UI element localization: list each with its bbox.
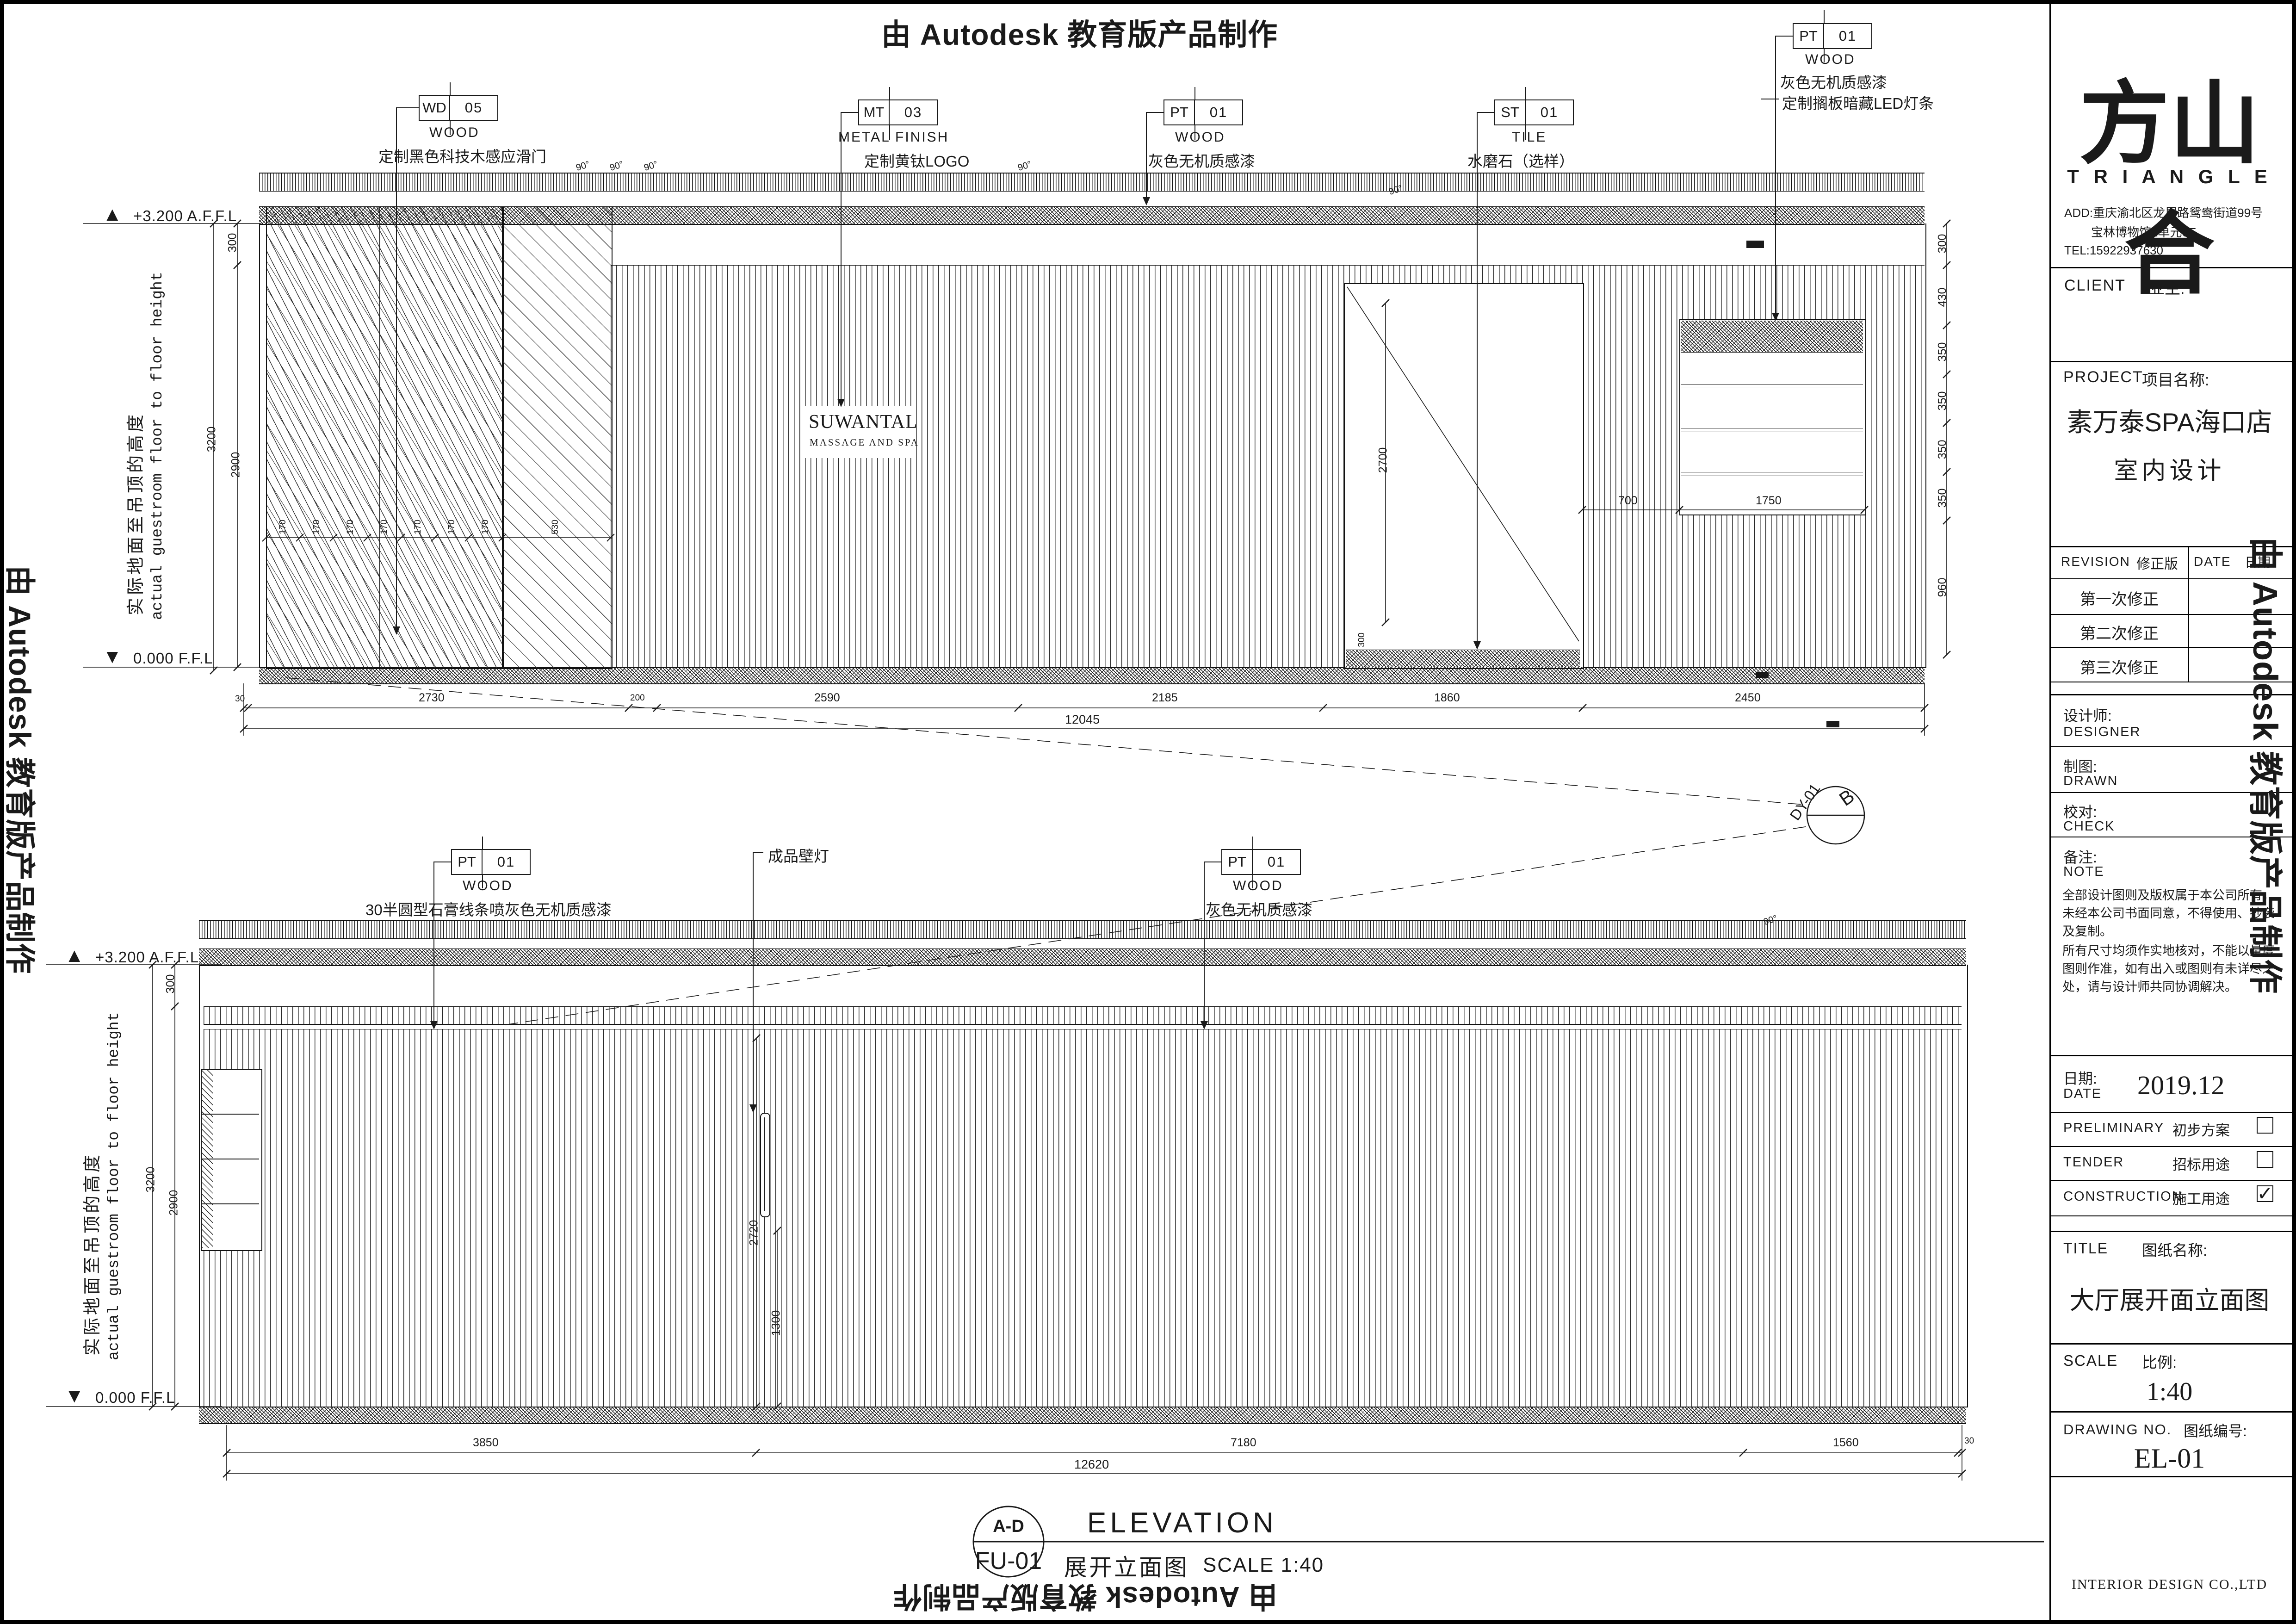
dim: 350 bbox=[1936, 342, 1949, 362]
callout-code: PT bbox=[1222, 850, 1253, 874]
callout-pt01-crown-desc: 30半圆型石膏线条喷灰色无机质感漆 bbox=[365, 898, 612, 920]
dim: 3200 bbox=[144, 1167, 157, 1193]
callout-code: MT bbox=[859, 100, 890, 124]
view-marker-top: A-D bbox=[973, 1517, 1044, 1537]
dim: 2900 bbox=[229, 452, 242, 478]
callout-pt01-crown: PT 01 bbox=[451, 849, 531, 875]
callout-pt01-top-material: WOOD bbox=[1175, 130, 1225, 145]
level-marker-icon: ▼ bbox=[103, 647, 122, 666]
dim: 3200 bbox=[205, 427, 218, 452]
dim: 2730 bbox=[419, 691, 445, 705]
dim: 300 bbox=[164, 974, 177, 994]
callout-pt01-wall-material: WOOD bbox=[1233, 878, 1283, 894]
callout-led-desc: 定制搁板暗藏LED灯条 bbox=[1782, 91, 1934, 113]
side-note-en-2: actual guestroom floor to floor height bbox=[105, 1012, 123, 1360]
dim: 430 bbox=[1936, 288, 1949, 307]
dim: 170 bbox=[278, 520, 288, 534]
level-marker-icon: ▼ bbox=[65, 1386, 84, 1406]
dim: 2185 bbox=[1152, 691, 1178, 705]
callout-code: WD bbox=[420, 96, 450, 120]
callout-pt01-shelf-material: WOOD bbox=[1805, 52, 1856, 68]
linework-overlay bbox=[0, 0, 2296, 1624]
callout-number: 05 bbox=[450, 96, 497, 120]
callout-code: PT bbox=[1794, 24, 1824, 48]
callout-pt01-wall: PT 01 bbox=[1221, 849, 1301, 875]
dim: 700 bbox=[1618, 494, 1638, 508]
dim: 300 bbox=[226, 233, 239, 253]
side-note-cn-2: 实际地面至吊顶的高度 bbox=[78, 1152, 103, 1356]
callout-number: 01 bbox=[1253, 850, 1300, 874]
callout-mt03-desc: 定制黄钛LOGO bbox=[864, 149, 969, 171]
dim: 170 bbox=[447, 520, 457, 534]
dim: 1860 bbox=[1434, 691, 1460, 705]
callout-pt01-crown-material: WOOD bbox=[463, 878, 513, 894]
dim: 1560 bbox=[1833, 1436, 1859, 1450]
dim: 170 bbox=[481, 520, 491, 534]
dim: 2450 bbox=[1735, 691, 1761, 705]
callout-pt01-top-desc: 灰色无机质感漆 bbox=[1148, 149, 1255, 171]
callout-st01-desc: 水磨石（选样） bbox=[1467, 149, 1574, 171]
dim: 350 bbox=[1936, 489, 1949, 508]
dim: 170 bbox=[312, 520, 322, 534]
view-title-en: ELEVATION bbox=[1087, 1506, 1277, 1539]
dim: 300 bbox=[1936, 234, 1949, 254]
dim: 170 bbox=[346, 520, 356, 534]
dim: 2590 bbox=[814, 691, 840, 705]
callout-wd05: WD 05 bbox=[419, 95, 498, 121]
level-bottom-label-2: 0.000 F.F.L bbox=[95, 1389, 175, 1407]
callout-wd05-desc: 定制黑色科技木感应滑门 bbox=[378, 144, 546, 167]
side-note-cn: 实际地面至吊顶的高度 bbox=[121, 412, 147, 615]
callout-pt01-shelf: PT 01 bbox=[1793, 23, 1872, 49]
dim: 200 bbox=[630, 693, 645, 703]
dim: 170 bbox=[413, 520, 423, 534]
view-scale: SCALE 1:40 bbox=[1203, 1554, 1324, 1577]
dim: 2700 bbox=[1376, 447, 1390, 473]
dim: 2720 bbox=[747, 1220, 761, 1246]
level-marker-icon: ▲ bbox=[103, 205, 122, 224]
level-bottom-label: 0.000 F.F.L bbox=[133, 650, 213, 667]
dim-total: 12045 bbox=[1065, 713, 1100, 727]
level-top-label-2: +3.200 A.F.F.L bbox=[95, 948, 199, 966]
dim: 350 bbox=[1936, 440, 1949, 459]
callout-mt03: MT 03 bbox=[858, 99, 938, 125]
callout-mt03-material: METAL FINISH bbox=[838, 130, 949, 145]
dim: 30 bbox=[235, 694, 245, 704]
drawing-sheet: 由 Autodesk 教育版产品制作 由 Autodesk 教育版产品制作 由 … bbox=[0, 0, 2296, 1624]
callout-number: 01 bbox=[483, 850, 530, 874]
view-title-cn: 展开立面图 bbox=[1064, 1549, 1189, 1582]
dim: 170 bbox=[379, 520, 390, 534]
callout-code: PT bbox=[452, 850, 483, 874]
level-top-label: +3.200 A.F.F.L bbox=[133, 207, 237, 225]
callout-code: PT bbox=[1164, 100, 1195, 124]
callout-number: 01 bbox=[1824, 24, 1871, 48]
dim: 3850 bbox=[473, 1436, 499, 1450]
dim: 350 bbox=[1936, 391, 1949, 411]
level-marker-icon: ▲ bbox=[65, 946, 84, 965]
dim: 7180 bbox=[1231, 1436, 1256, 1450]
side-note-en: actual guestroom floor to floor height bbox=[149, 272, 166, 620]
autodesk-banner-right: 由 Autodesk 教育版产品制作 bbox=[2243, 537, 2293, 994]
callout-pt01-shelf-desc: 灰色无机质感漆 bbox=[1780, 70, 1887, 93]
dim: 1750 bbox=[1756, 494, 1782, 508]
callout-number: 01 bbox=[1526, 100, 1573, 124]
wall-lamp-label: 成品壁灯 bbox=[768, 844, 829, 866]
callout-st01: ST 01 bbox=[1494, 99, 1574, 125]
dim: 300 bbox=[1357, 632, 1367, 647]
callout-code: ST bbox=[1495, 100, 1526, 124]
callout-pt01-wall-desc: 灰色无机质感漆 bbox=[1206, 898, 1312, 920]
dim: 30 bbox=[1964, 1436, 1974, 1446]
dim: 960 bbox=[1936, 578, 1949, 597]
dim: 1300 bbox=[769, 1310, 783, 1336]
callout-pt01-top: PT 01 bbox=[1163, 99, 1243, 125]
callout-number: 01 bbox=[1195, 100, 1242, 124]
dim: 2900 bbox=[167, 1190, 180, 1216]
callout-number: 03 bbox=[890, 100, 937, 124]
callout-wd05-material: WOOD bbox=[429, 125, 480, 141]
callout-st01-material: TILE bbox=[1512, 130, 1547, 145]
dim-total: 12620 bbox=[1074, 1457, 1109, 1472]
dim: 530 bbox=[551, 520, 561, 534]
view-marker-code: FU-01 bbox=[973, 1547, 1044, 1575]
